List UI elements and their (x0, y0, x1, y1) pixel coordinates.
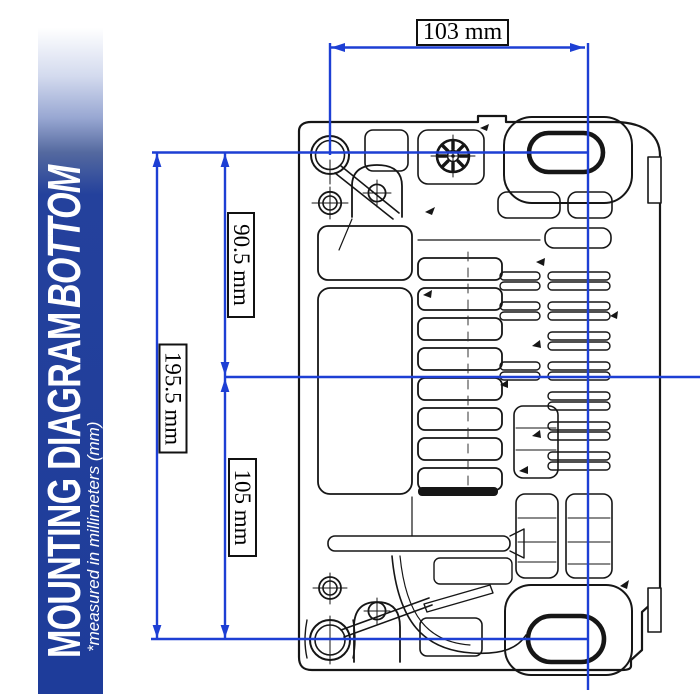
dimension-label-width-top: 103 mm (416, 19, 509, 46)
dimension-lines-overlay (151, 43, 700, 690)
cooling-fins (500, 272, 610, 470)
sidebar-subtitle-text: *measured in millimeters (mm) (84, 422, 103, 652)
sidebar-title: MOUNTING DIAGRAMBOTTOM (42, 0, 86, 658)
draft-arrow-marks (423, 124, 629, 589)
bottom-left-bolt-hole (305, 573, 432, 664)
top-arch-bore (352, 130, 408, 217)
left-panels (318, 226, 412, 494)
sidebar-subtitle: *measured in millimeters (mm) (85, 422, 102, 652)
sidebar-title-emphasis: BOTTOM (38, 166, 90, 308)
fan-hub (418, 130, 484, 184)
engine-line-art (299, 116, 661, 675)
top-right-slot-mount (418, 117, 632, 248)
rib-slats (418, 252, 502, 492)
dimension-label-upper-height: 90.5 mm (227, 212, 255, 318)
bottom-right-slot-mount (505, 585, 632, 675)
sidebar-title-text: MOUNTING DIAGRAM (38, 312, 90, 658)
dimension-label-lower-height: 105 mm (228, 458, 257, 557)
right-edge-tab-bottom (648, 588, 661, 632)
right-edge-tab-top (648, 157, 661, 203)
dimension-label-total-height: 195.5 mm (159, 343, 188, 453)
engine-bottom-drawing (0, 0, 700, 700)
case-outline (299, 116, 661, 670)
bottom-center-structures (328, 487, 526, 656)
